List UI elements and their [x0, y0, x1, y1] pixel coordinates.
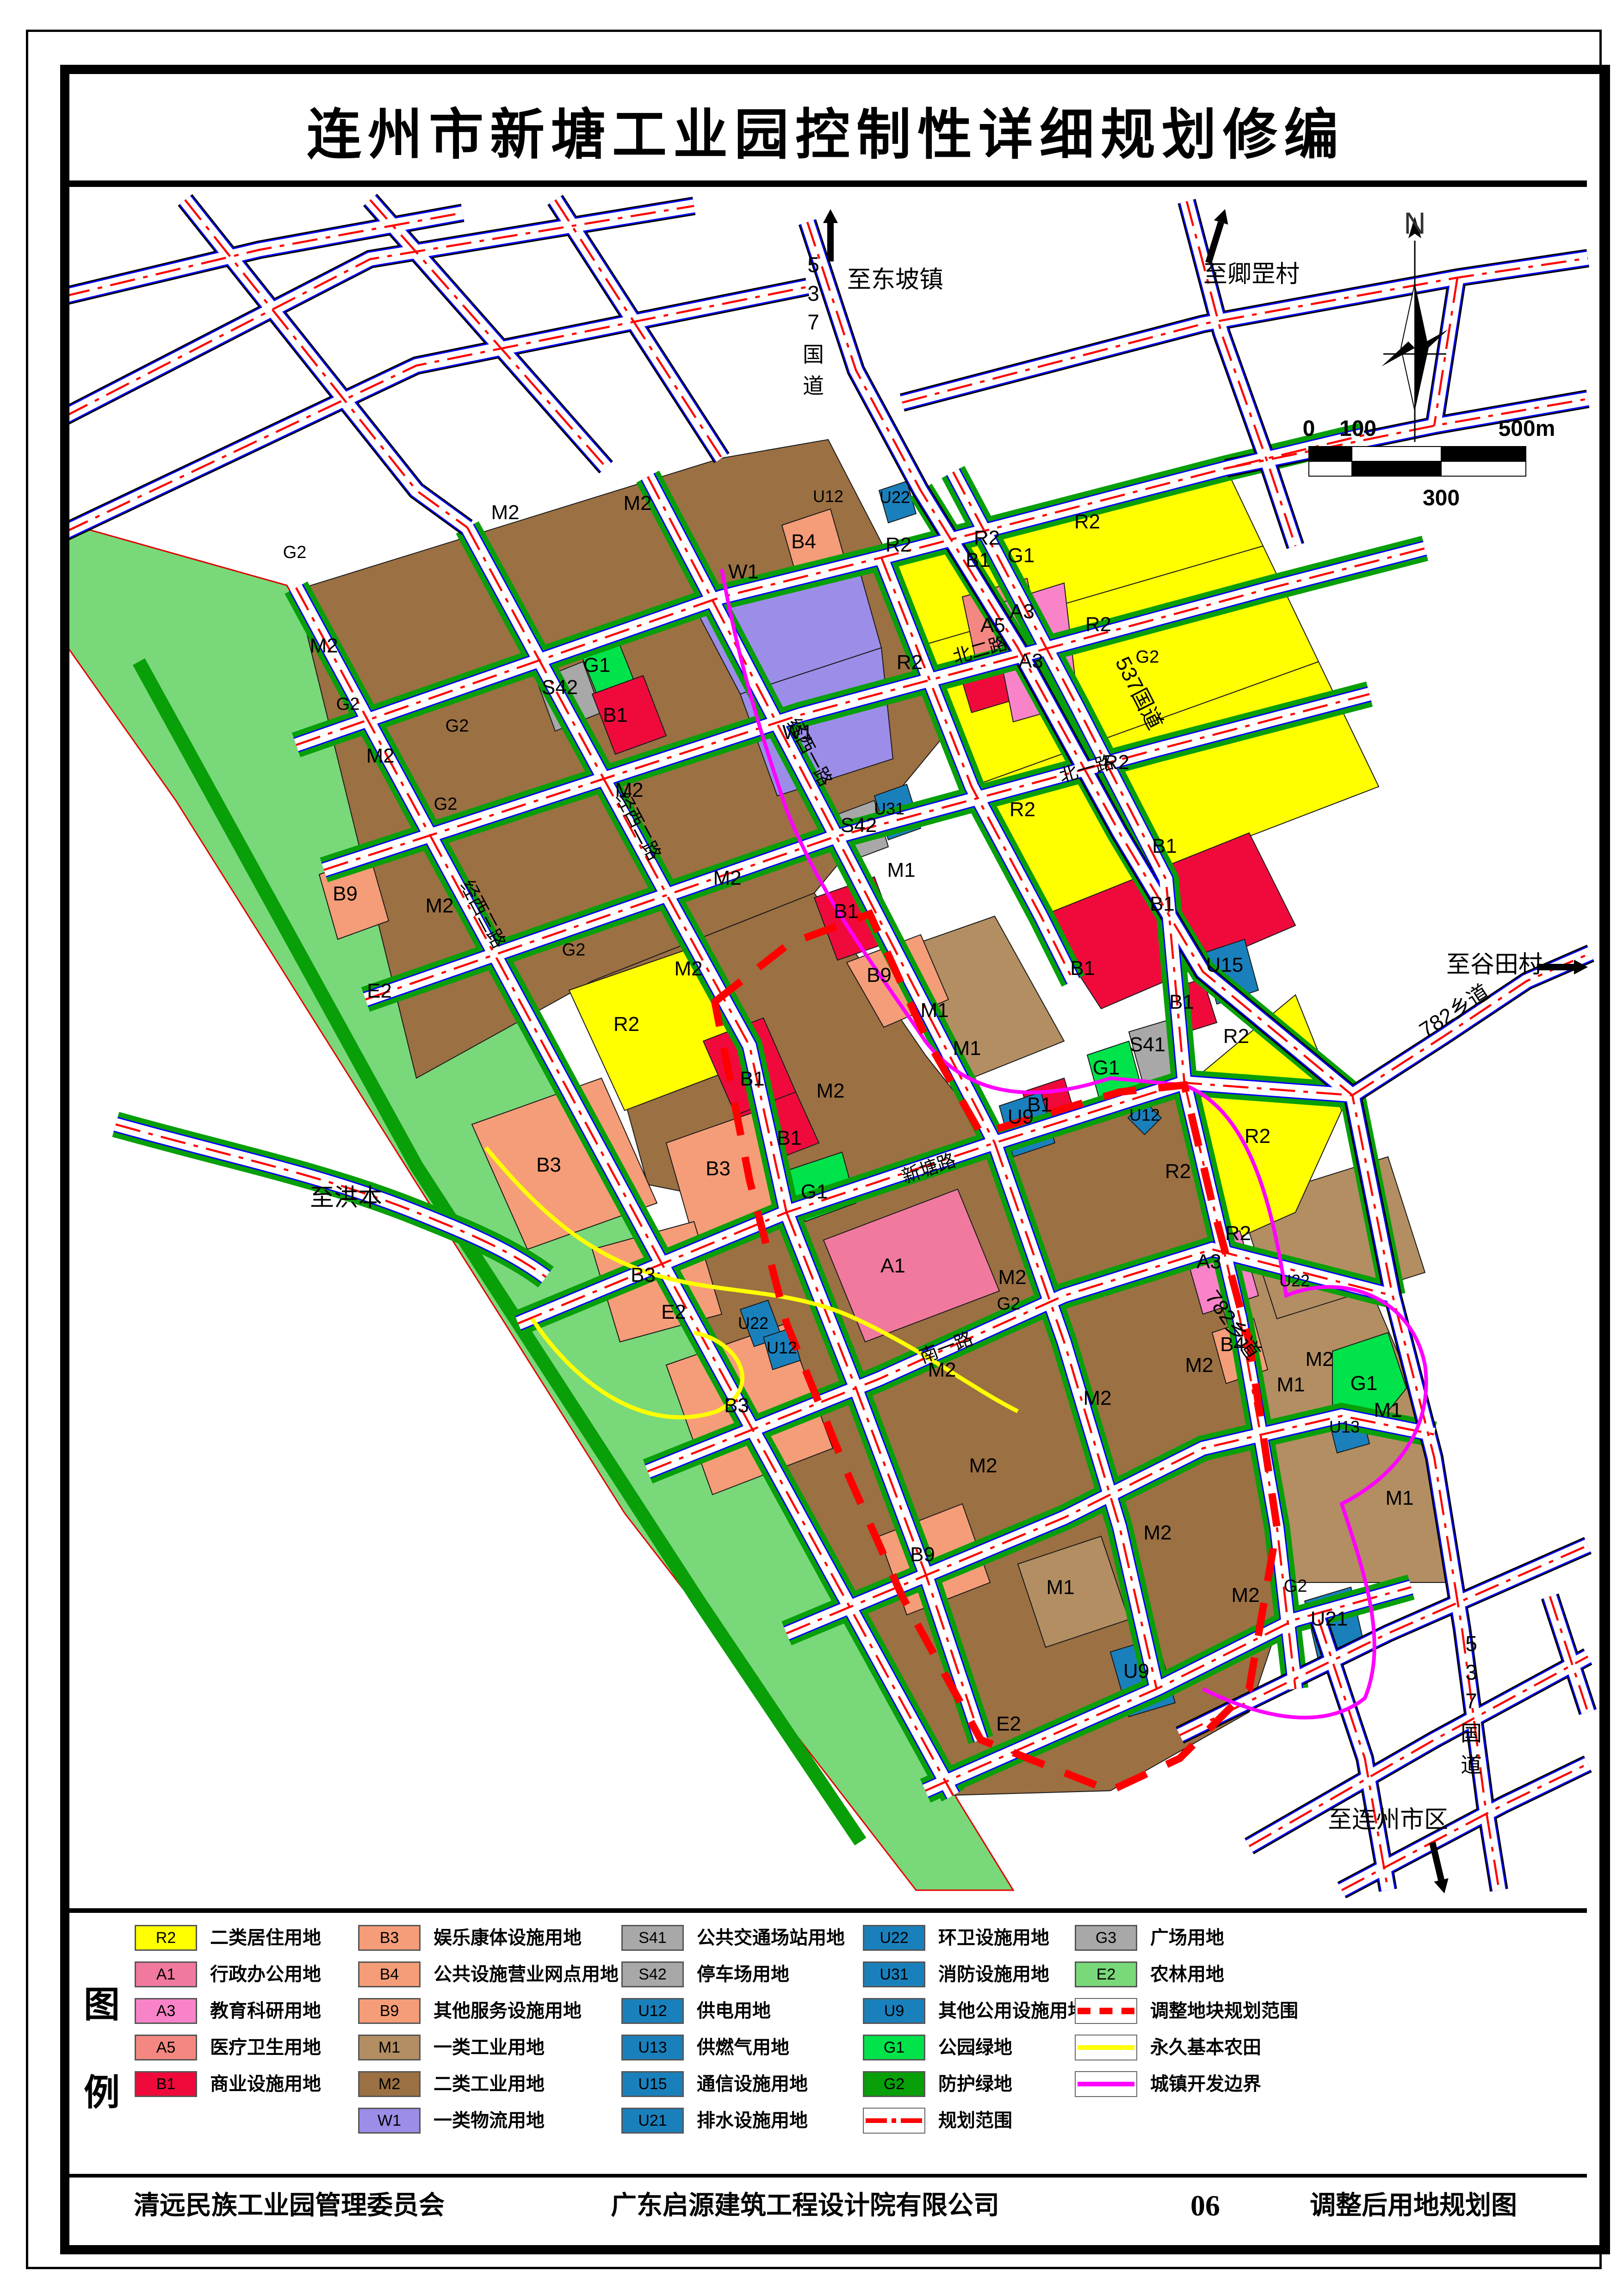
legend-top-line [65, 1908, 1587, 1913]
legend-label: 停车场用地 [697, 1961, 789, 1987]
legend-symbol-red-mixed [863, 2108, 925, 2134]
legend-swatch-U21: U21 [621, 2108, 684, 2134]
footer-top-line [65, 2174, 1587, 2178]
legend-label: 一类物流用地 [434, 2108, 545, 2134]
legend-label: 娱乐康体设施用地 [434, 1925, 582, 1951]
legend-swatch-U22: U22 [863, 1925, 925, 1951]
legend-title-char-2: 例 [76, 2064, 127, 2116]
legend-swatch-G1: G1 [863, 2035, 925, 2060]
legend-swatch-B3: B3 [358, 1925, 421, 1951]
legend-label: 二类居住用地 [210, 1925, 321, 1951]
legend-swatch-G3: G3 [1075, 1925, 1137, 1951]
legend-label: 一类工业用地 [434, 2035, 545, 2060]
legend-symbol-red-dash [1075, 1998, 1137, 2024]
legend-swatch-B4: B4 [358, 1961, 421, 1987]
legend-swatch-U9: U9 [863, 1998, 925, 2024]
legend-label: 防护绿地 [938, 2071, 1012, 2097]
legend-swatch-M1: M1 [358, 2035, 421, 2060]
legend-label: 消防设施用地 [938, 1961, 1049, 1987]
legend-label: 二类工业用地 [434, 2071, 545, 2097]
legend-swatch-R2: R2 [135, 1925, 197, 1951]
planning-sheet: { "title": "连州市新塘工业园控制性详细规划修编", "legend"… [0, 0, 1623, 2296]
legend-label: 其他公用设施用地 [938, 1998, 1086, 2024]
legend-label: 城镇开发边界 [1150, 2071, 1261, 2097]
legend-symbol-yellow [1075, 2035, 1137, 2060]
legend-label: 公共设施营业网点用地 [434, 1961, 619, 1987]
legend-swatch-A1: A1 [135, 1961, 197, 1987]
legend-label: 农林用地 [1150, 1961, 1224, 1987]
legend-swatch-S42: S42 [621, 1961, 684, 1987]
legend-swatch-U31: U31 [863, 1961, 925, 1987]
legend-swatch-A5: A5 [135, 2035, 197, 2060]
legend-swatch-G2: G2 [863, 2071, 925, 2097]
legend-label: 供燃气用地 [697, 2035, 789, 2060]
legend-label: 广场用地 [1150, 1925, 1224, 1951]
legend-label: 公园绿地 [938, 2035, 1012, 2060]
legend-label: 环卫设施用地 [938, 1925, 1049, 1951]
legend-label: 供电用地 [697, 1998, 771, 2024]
title-separator [65, 180, 1587, 187]
legend-title-char-1: 图 [76, 1976, 127, 2028]
footer-sheet-name: 调整后用地规划图 [1310, 2180, 1517, 2231]
legend-label: 排水设施用地 [697, 2108, 808, 2134]
legend-label: 调整地块规划范围 [1150, 1998, 1298, 2024]
legend-swatch-A3: A3 [135, 1998, 197, 2024]
legend-label: 公共交通场站用地 [697, 1925, 845, 1951]
legend-swatch-B9: B9 [358, 1998, 421, 2024]
legend-label: 商业设施用地 [210, 2071, 321, 2097]
legend-label: 规划范围 [938, 2108, 1012, 2134]
legend-swatch-B1: B1 [135, 2071, 197, 2097]
legend-swatch-M2: M2 [358, 2071, 421, 2097]
legend-symbol-magenta [1075, 2071, 1137, 2097]
legend-label: 医疗卫生用地 [210, 2035, 321, 2060]
footer-sheet-number: 06 [1190, 2180, 1220, 2231]
legend-label: 行政办公用地 [210, 1961, 321, 1987]
legend-label: 其他服务设施用地 [434, 1998, 582, 2024]
legend-swatch-E2: E2 [1075, 1961, 1137, 1987]
footer-managing-org: 清远民族工业园管理委员会 [134, 2180, 445, 2231]
legend-swatch-W1: W1 [358, 2108, 421, 2134]
sheet-title: 连州市新塘工业园控制性详细规划修编 [69, 83, 1582, 176]
legend-swatch-U15: U15 [621, 2071, 684, 2097]
legend-swatch-U13: U13 [621, 2035, 684, 2060]
legend-swatch-S41: S41 [621, 1925, 684, 1951]
legend-swatch-U12: U12 [621, 1998, 684, 2024]
legend-label: 教育科研用地 [210, 1998, 321, 2024]
legend-label: 通信设施用地 [697, 2071, 808, 2097]
footer-design-institute: 广东启源建筑工程设计院有限公司 [611, 2180, 999, 2231]
legend-label: 永久基本农田 [1150, 2035, 1261, 2060]
